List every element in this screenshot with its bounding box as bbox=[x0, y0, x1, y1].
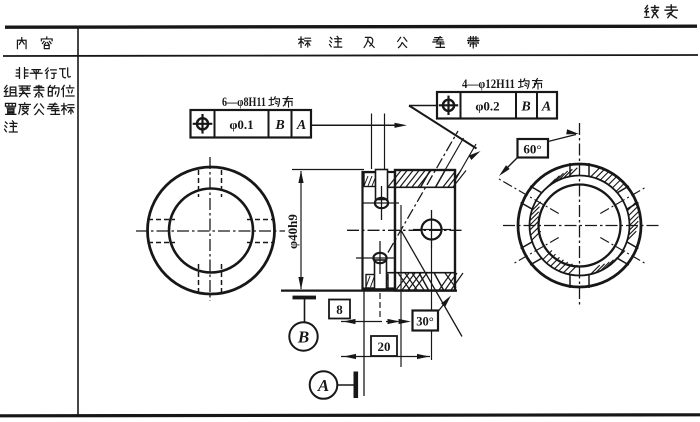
svg-text:4—φ12H11: 4—φ12H11 bbox=[462, 76, 515, 91]
svg-text:6—φ8H11: 6—φ8H11 bbox=[222, 94, 266, 109]
svg-text:φ40h9: φ40h9 bbox=[285, 214, 300, 249]
svg-text:20: 20 bbox=[378, 339, 391, 354]
svg-text:B: B bbox=[297, 328, 309, 347]
svg-text:A: A bbox=[296, 118, 306, 133]
svg-text:A: A bbox=[541, 100, 551, 115]
svg-text:B: B bbox=[520, 100, 530, 115]
svg-text:60°: 60° bbox=[523, 141, 541, 156]
svg-text:A: A bbox=[317, 376, 329, 395]
svg-text:φ0.1: φ0.1 bbox=[229, 117, 253, 132]
svg-text:8: 8 bbox=[336, 302, 343, 317]
svg-text:φ0.2: φ0.2 bbox=[475, 98, 499, 113]
svg-text:B: B bbox=[274, 118, 284, 133]
svg-text:30°: 30° bbox=[416, 315, 434, 329]
